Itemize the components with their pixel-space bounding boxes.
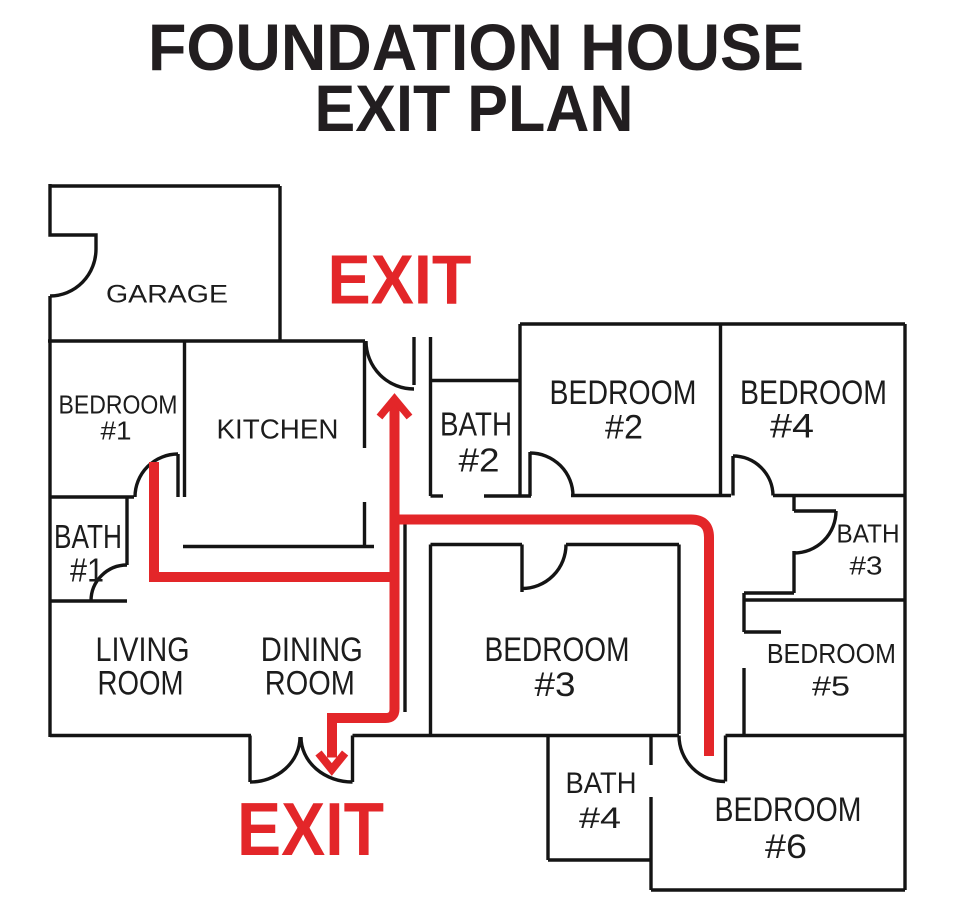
svg-text:#1: #1 xyxy=(101,418,132,446)
svg-text:#3: #3 xyxy=(535,666,576,704)
svg-text:#6: #6 xyxy=(765,828,807,866)
svg-text:EXIT: EXIT xyxy=(328,241,472,319)
svg-text:#1: #1 xyxy=(70,553,104,590)
svg-text:EXIT: EXIT xyxy=(237,787,384,871)
svg-text:#2: #2 xyxy=(459,443,500,480)
svg-text:#4: #4 xyxy=(579,802,621,835)
svg-text:BATH: BATH xyxy=(440,407,512,444)
svg-text:LIVING: LIVING xyxy=(96,631,190,669)
svg-text:BEDROOM: BEDROOM xyxy=(715,791,862,829)
svg-text:BEDROOM: BEDROOM xyxy=(740,374,887,412)
svg-text:ROOM: ROOM xyxy=(265,665,355,703)
svg-text:BATH: BATH xyxy=(837,521,900,549)
svg-text:GARAGE: GARAGE xyxy=(106,282,228,309)
svg-text:BEDROOM: BEDROOM xyxy=(767,638,896,669)
svg-text:EXIT PLAN: EXIT PLAN xyxy=(315,71,634,145)
svg-text:BEDROOM: BEDROOM xyxy=(485,631,630,669)
svg-text:BATH: BATH xyxy=(566,767,637,800)
svg-text:KITCHEN: KITCHEN xyxy=(217,414,339,445)
svg-text:BATH: BATH xyxy=(54,519,122,556)
svg-text:ROOM: ROOM xyxy=(98,665,184,703)
svg-text:BEDROOM: BEDROOM xyxy=(59,392,178,420)
svg-text:#5: #5 xyxy=(812,671,850,702)
svg-text:DINING: DINING xyxy=(261,631,363,669)
svg-text:BEDROOM: BEDROOM xyxy=(550,374,697,412)
svg-text:#2: #2 xyxy=(605,409,643,447)
svg-text:#4: #4 xyxy=(770,408,814,446)
svg-text:#3: #3 xyxy=(850,553,883,581)
